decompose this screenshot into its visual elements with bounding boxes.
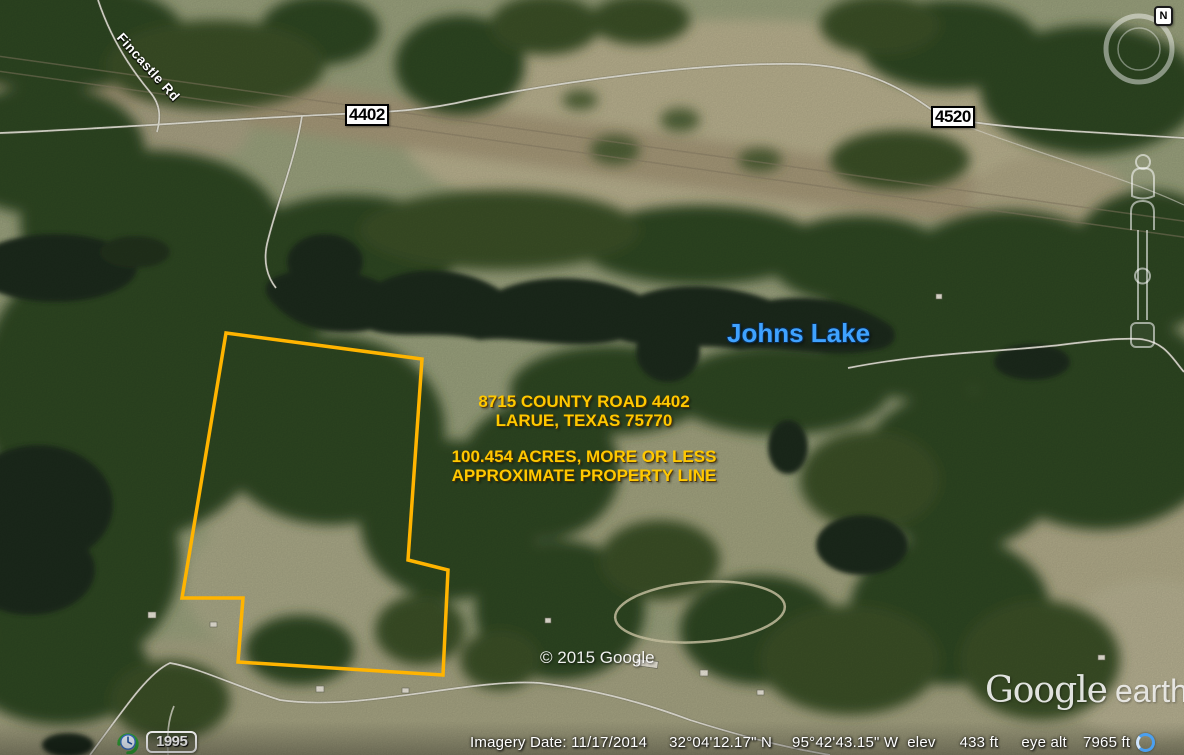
google-earth-logo: Google earth (985, 670, 1184, 711)
image-grain (0, 0, 1184, 755)
property-address-line2: LARUE, TEXAS 75770 (408, 411, 760, 430)
lake-label: Johns Lake (727, 318, 870, 349)
historical-imagery-clock-icon[interactable] (116, 730, 140, 754)
property-annotation: 8715 COUNTY ROAD 4402 LARUE, TEXAS 75770… (408, 392, 760, 485)
longitude-readout: 95°42'43.15" W (792, 734, 898, 751)
eye-alt-label: eye alt (1021, 734, 1067, 751)
imagery-date: Imagery Date: 11/17/2014 (470, 734, 647, 751)
map-viewport[interactable]: Fincastle Rd 4402 4520 Johns Lake 8715 C… (0, 0, 1184, 755)
elevation-readout: 433 ft (960, 734, 999, 751)
status-bar: Imagery Date: 11/17/2014 32°04'12.17" N … (470, 733, 1155, 752)
road-shield-1995: 1995 (146, 731, 197, 753)
north-indicator[interactable]: N (1154, 6, 1173, 26)
copyright-watermark: © 2015 Google (540, 648, 655, 668)
satellite-imagery (0, 0, 1184, 755)
logo-google-text: Google (985, 670, 1107, 711)
property-boundary-note: APPROXIMATE PROPERTY LINE (408, 466, 760, 485)
road-shield-4520: 4520 (931, 106, 975, 128)
elev-label: elev (907, 734, 935, 751)
road-shield-4402: 4402 (345, 104, 389, 126)
latitude-readout: 32°04'12.17" N (669, 734, 772, 751)
property-address-line1: 8715 COUNTY ROAD 4402 (408, 392, 760, 411)
property-acreage-line: 100.454 ACRES, MORE OR LESS (408, 447, 760, 466)
eye-altitude-readout: 7965 ft (1083, 734, 1130, 751)
zoom-out-button[interactable] (1131, 323, 1154, 347)
logo-earth-text: earth (1115, 673, 1184, 710)
streaming-progress-icon (1136, 733, 1155, 752)
zoom-slider-thumb[interactable] (1135, 269, 1150, 284)
look-joystick-control[interactable] (1132, 155, 1154, 199)
